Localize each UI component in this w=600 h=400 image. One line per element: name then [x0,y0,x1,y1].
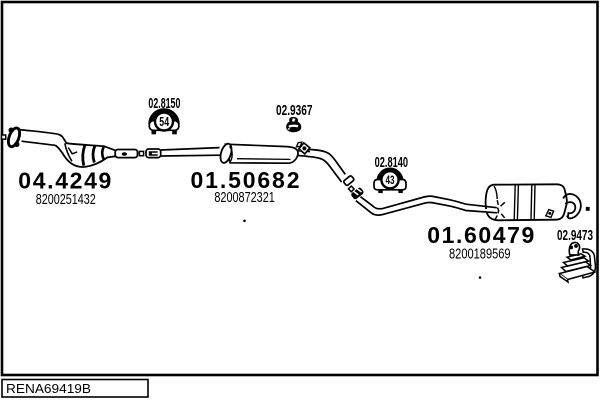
svg-text:01.60479: 01.60479 [427,222,534,248]
svg-text:02.9367: 02.9367 [276,102,313,119]
svg-text:02.9473: 02.9473 [557,227,593,244]
svg-text:54: 54 [159,115,169,129]
svg-text:43: 43 [386,173,395,187]
svg-text:RENA69419B: RENA69419B [6,381,91,396]
svg-text:8200189569: 8200189569 [449,247,511,263]
svg-text:8200251432: 8200251432 [36,192,96,208]
svg-text:8200872321: 8200872321 [214,190,274,206]
